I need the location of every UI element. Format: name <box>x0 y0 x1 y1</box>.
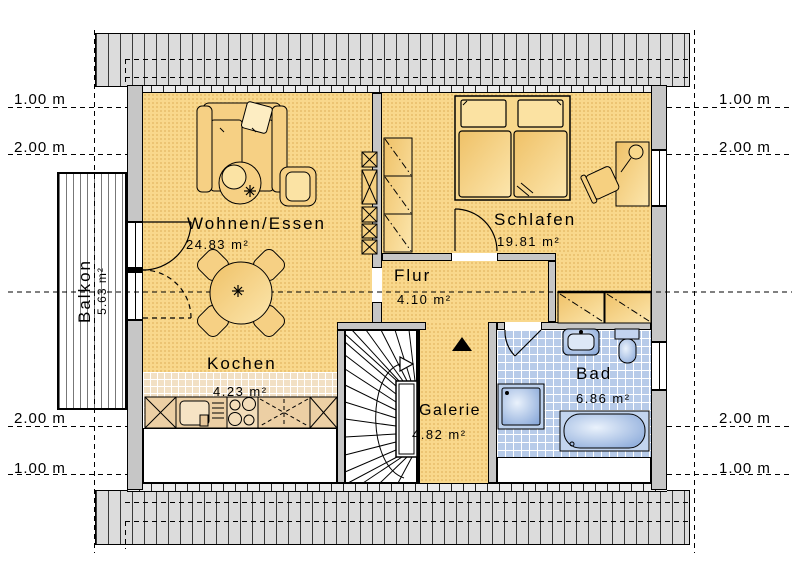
room-label-bad: Bad <box>576 364 612 384</box>
dim-label-left-1m-top: 1.00 m <box>14 91 66 108</box>
dim-label-left-2m-top: 2.00 m <box>14 139 66 156</box>
stairwell-floor <box>345 330 417 483</box>
roof-contour-top-b <box>125 77 688 78</box>
dim-label-right-1m-top: 1.00 m <box>719 91 771 108</box>
room-area-flur: 4.10 m² <box>397 292 452 307</box>
room-flur-galerie-opening <box>426 322 488 330</box>
wall-galerie-bath <box>488 322 497 483</box>
room-label-kochen: Kochen <box>207 354 277 374</box>
kitchen-under-roof-area <box>143 428 337 483</box>
room-area-schlafen: 19.81 m² <box>497 234 560 249</box>
dim-label-right-1m-bottom: 1.00 m <box>719 460 771 477</box>
wall-right-middle <box>651 206 667 342</box>
roof-contour-bottom-b <box>125 521 688 522</box>
room-schlafen-extension <box>556 253 651 322</box>
room-label-wohnen: Wohnen/Essen <box>187 214 326 234</box>
wall-flur-bedroom-vertical <box>548 261 556 322</box>
dim-label-right-2m-bottom: 2.00 m <box>719 410 771 427</box>
room-label-flur: Flur <box>394 266 431 286</box>
outer-wall-bottom <box>127 483 667 492</box>
room-area-kochen: 4.23 m² <box>213 384 268 399</box>
wall-flur-bedroom-left <box>382 253 452 261</box>
wall-kitchen-stairs <box>337 330 345 483</box>
dim-label-left-2m-bottom: 2.00 m <box>14 410 66 427</box>
wall-above-stairs <box>337 322 426 330</box>
dim-label-left-1m-bottom: 1.00 m <box>14 460 66 477</box>
roof-contour-top-a <box>125 59 688 60</box>
wall-bath-top-left <box>497 322 505 330</box>
wall-living-bedroom-upper <box>372 93 382 268</box>
roof-contour-connector-bottom <box>125 521 126 549</box>
room-area-galerie: 4.82 m² <box>412 427 467 442</box>
wall-right-lower <box>651 390 667 490</box>
wall-left-lower <box>127 320 143 490</box>
roof-contour-bottom-a <box>125 502 688 503</box>
dim-label-right-2m-top: 2.00 m <box>719 139 771 156</box>
roof-band-top <box>95 33 690 87</box>
bedroom-window <box>651 150 667 206</box>
room-area-bad: 6.86 m² <box>576 391 631 406</box>
roof-contour-connector-top <box>125 59 126 87</box>
wall-flur-bedroom-right <box>497 253 556 261</box>
bath-window <box>651 342 667 390</box>
wall-left-upper <box>127 85 143 222</box>
outer-wall-top <box>127 85 667 93</box>
floor-plan: Wohnen/Essen 24.83 m² Schlafen 19.81 m² … <box>0 0 800 579</box>
wall-right-upper <box>651 85 667 150</box>
bath-under-roof-area <box>497 457 651 483</box>
room-area-balkon: 5.63 m² <box>95 267 109 315</box>
room-label-galerie: Galerie <box>419 402 481 420</box>
kitchen-tile-floor <box>143 372 337 430</box>
balcony-door-post <box>127 267 143 273</box>
roof-band-bottom <box>95 490 690 545</box>
balcony-label-group: Balkon 5.63 m² <box>57 172 127 410</box>
roof-edge-line-right <box>694 30 695 553</box>
room-label-balkon: Balkon <box>75 259 95 323</box>
room-area-wohnen: 24.83 m² <box>186 237 249 252</box>
room-label-schlafen: Schlafen <box>494 210 576 230</box>
wall-bath-top-right <box>541 322 651 330</box>
